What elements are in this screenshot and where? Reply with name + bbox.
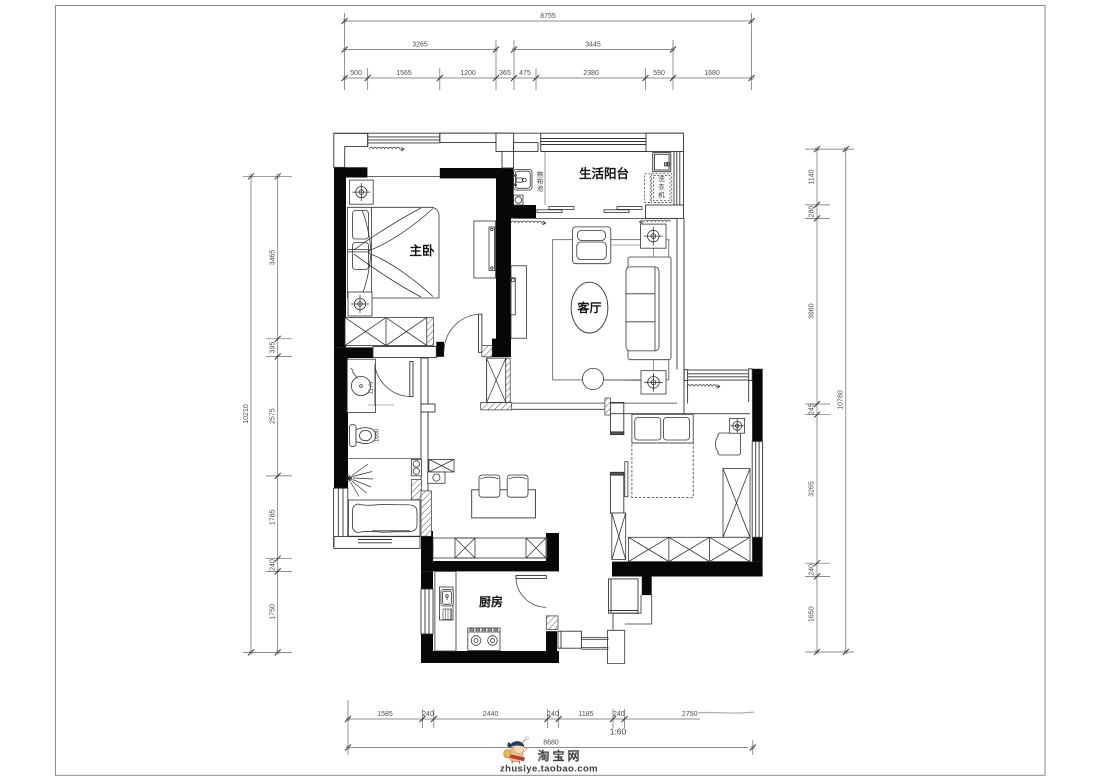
svg-text:10210: 10210 xyxy=(243,404,250,424)
svg-text:1785: 1785 xyxy=(270,509,277,525)
svg-text:590: 590 xyxy=(653,70,665,77)
svg-text:主卧: 主卧 xyxy=(409,243,435,258)
svg-text:240: 240 xyxy=(270,559,277,571)
svg-text:2380: 2380 xyxy=(583,70,599,77)
svg-text:1:60: 1:60 xyxy=(610,727,627,737)
svg-text:280: 280 xyxy=(809,206,816,218)
svg-text:240: 240 xyxy=(422,711,434,718)
svg-text:1185: 1185 xyxy=(578,711,593,718)
svg-text:拖: 拖 xyxy=(537,170,544,179)
svg-text:厨房: 厨房 xyxy=(479,594,503,609)
svg-text:1200: 1200 xyxy=(460,70,476,77)
svg-text:zhusiye.taobao.com: zhusiye.taobao.com xyxy=(500,764,598,775)
svg-text:475: 475 xyxy=(519,70,531,77)
svg-text:2440: 2440 xyxy=(483,711,499,718)
svg-text:1000: 1000 xyxy=(375,428,381,442)
svg-text:240: 240 xyxy=(613,711,625,718)
svg-text:3960: 3960 xyxy=(809,303,816,319)
svg-text:8755: 8755 xyxy=(540,13,556,20)
svg-text:衣: 衣 xyxy=(658,182,665,191)
svg-text:365: 365 xyxy=(499,70,511,77)
svg-text:240: 240 xyxy=(809,564,816,576)
svg-text:2575: 2575 xyxy=(270,408,277,424)
svg-text:1585: 1585 xyxy=(377,711,393,718)
svg-text:客厅: 客厅 xyxy=(576,300,601,315)
svg-text:3265: 3265 xyxy=(809,481,816,497)
svg-text:500: 500 xyxy=(350,70,362,77)
svg-text:395: 395 xyxy=(270,342,277,354)
svg-text:3465: 3465 xyxy=(270,250,277,266)
svg-text:3445: 3445 xyxy=(585,42,601,49)
svg-text:1565: 1565 xyxy=(396,70,412,77)
svg-text:1140: 1140 xyxy=(809,169,816,184)
svg-text:1175: 1175 xyxy=(369,381,375,395)
svg-text:2750: 2750 xyxy=(682,711,698,718)
svg-text:洗: 洗 xyxy=(658,174,665,183)
svg-text:3265: 3265 xyxy=(412,42,428,49)
svg-text:池: 池 xyxy=(537,184,544,193)
svg-text:布: 布 xyxy=(537,177,544,186)
svg-text:245: 245 xyxy=(809,403,816,415)
svg-text:1680: 1680 xyxy=(704,70,720,77)
svg-text:8680: 8680 xyxy=(543,740,559,747)
svg-text:240: 240 xyxy=(547,711,559,718)
svg-text:1750: 1750 xyxy=(270,604,277,620)
svg-text:生活阳台: 生活阳台 xyxy=(579,166,629,181)
svg-text:10780: 10780 xyxy=(838,390,845,410)
svg-text:1650: 1650 xyxy=(809,606,816,622)
svg-text:机: 机 xyxy=(658,190,665,199)
